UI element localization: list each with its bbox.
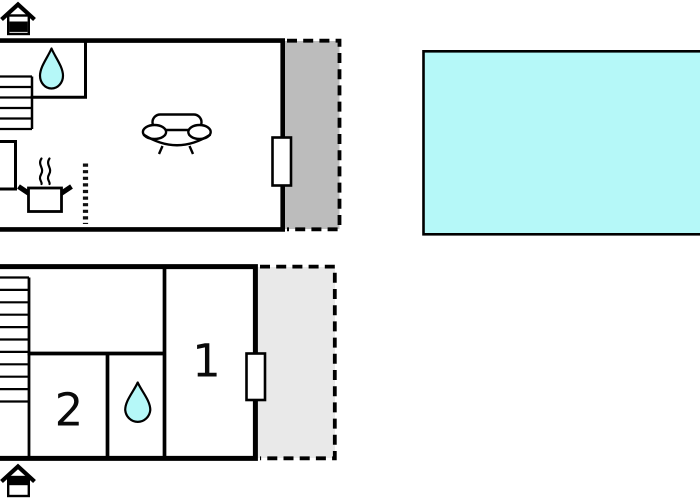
cooking-pot-icon bbox=[19, 187, 72, 212]
lower-floor-plan: 1 2 bbox=[0, 267, 335, 459]
terrace-upper bbox=[284, 41, 340, 229]
upper-floor-plan bbox=[0, 41, 340, 230]
entrance-house-door bbox=[8, 477, 29, 485]
water-drop-icon-upper bbox=[40, 49, 63, 89]
steam-icon bbox=[40, 159, 50, 185]
staircase-upper-icon bbox=[0, 77, 32, 130]
floor-plan-canvas: 1 2 bbox=[0, 0, 700, 500]
stair-steps bbox=[0, 77, 32, 130]
steam-wave-left bbox=[40, 159, 42, 185]
sofa-icon bbox=[143, 115, 211, 155]
swimming-pool bbox=[424, 51, 700, 234]
house-entrance-icon-upper bbox=[2, 5, 35, 35]
bedroom-1-label: 1 bbox=[192, 335, 221, 388]
bedroom-2-label: 2 bbox=[55, 384, 84, 437]
lower-interior-walls bbox=[28, 267, 165, 459]
water-drop-icon-lower bbox=[125, 383, 150, 422]
kitchen-counter-block bbox=[0, 142, 16, 190]
stair-steps bbox=[0, 278, 29, 402]
terrace-lower bbox=[257, 267, 335, 458]
window-marker-lower bbox=[247, 354, 266, 401]
sofa-legs bbox=[159, 146, 193, 154]
steam-wave-right bbox=[48, 159, 50, 185]
staircase-lower-icon bbox=[0, 278, 29, 457]
floor-plan-drawing: 1 2 bbox=[0, 0, 700, 500]
entrance-house-door bbox=[9, 22, 27, 32]
pot-body bbox=[29, 188, 62, 212]
house-entrance-icon-lower bbox=[2, 467, 35, 497]
window-marker-upper bbox=[273, 138, 292, 186]
